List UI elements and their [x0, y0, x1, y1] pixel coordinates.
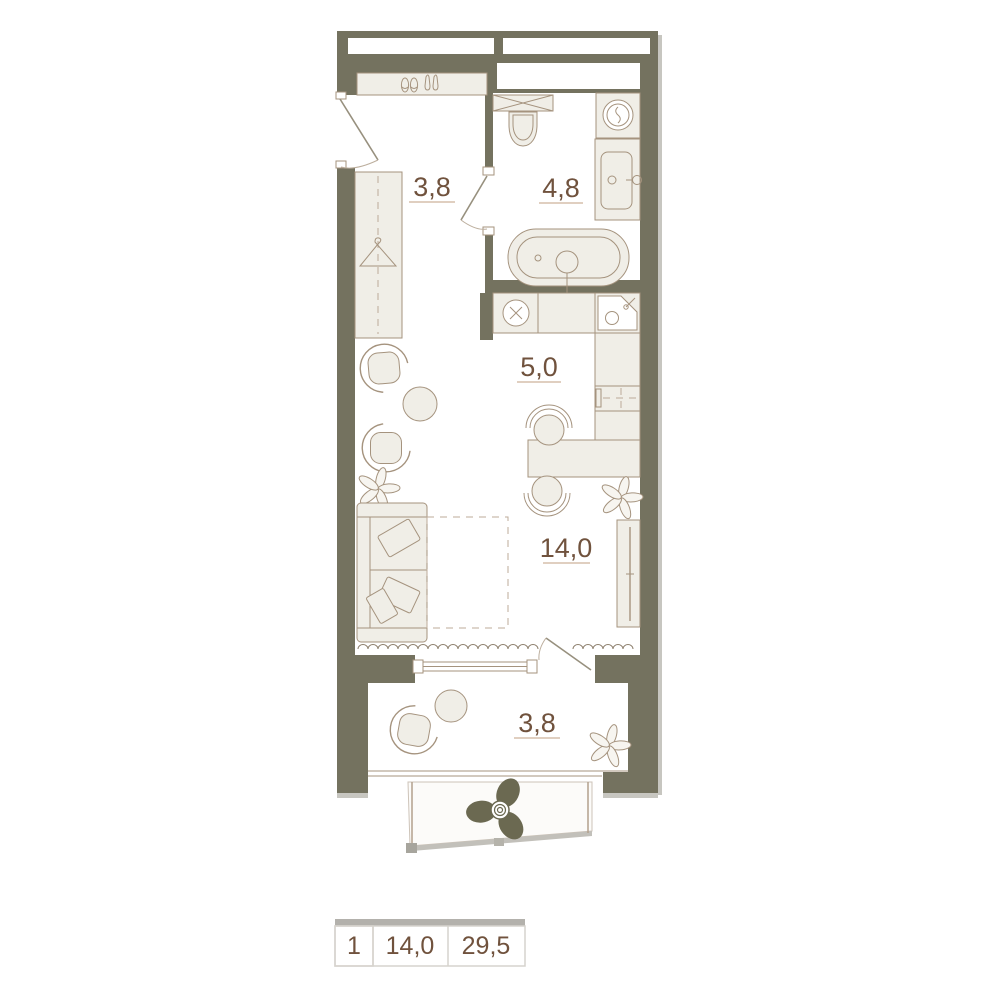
legend-top-bar — [335, 919, 525, 926]
balcony-door — [539, 638, 591, 670]
balcony-window — [413, 660, 537, 673]
room-label-living: 14,0 — [540, 533, 593, 563]
bathroom-door — [461, 167, 494, 235]
dining-chair — [526, 405, 572, 445]
stove — [503, 300, 529, 326]
sofa — [357, 503, 427, 642]
room-label-kitchen: 5,0 — [520, 352, 558, 382]
dining-table — [528, 440, 640, 477]
curtain — [358, 645, 633, 650]
plant-icon — [588, 724, 631, 769]
coffee-table — [403, 387, 437, 421]
room-label-balcony: 3,8 — [518, 708, 556, 738]
ventilation-niche — [497, 63, 640, 89]
bed-outline — [427, 517, 508, 628]
toilet — [493, 95, 553, 146]
entry-door — [336, 92, 378, 168]
plant-icon — [600, 476, 643, 521]
legend-total-area: 29,5 — [462, 932, 511, 960]
legend-rooms-count: 1 — [347, 932, 361, 960]
sink-vanity — [595, 139, 642, 220]
wardrobe — [355, 172, 402, 338]
washing-machine — [596, 93, 640, 138]
armchair — [350, 334, 416, 400]
tv-unit — [617, 520, 640, 627]
facade-window-slot — [348, 38, 494, 54]
floor-plan: 3,8 4,8 5,0 14,0 3,8 1 14,0 29,5 — [0, 0, 1000, 1000]
facade-window-slot — [503, 38, 650, 54]
room-label-hallway: 3,8 — [413, 172, 451, 202]
legend-living-area: 14,0 — [386, 932, 435, 960]
floor-plan-page: 3,8 4,8 5,0 14,0 3,8 1 14,0 29,5 — [0, 0, 1000, 1000]
legend-table: 1 14,0 29,5 — [335, 919, 525, 966]
dining-chair — [524, 476, 570, 516]
room-label-bathroom: 4,8 — [542, 173, 580, 203]
ac-unit — [406, 775, 592, 853]
shoe-rack — [357, 73, 487, 95]
balcony-parapet — [368, 771, 628, 776]
balcony-table — [435, 690, 467, 722]
